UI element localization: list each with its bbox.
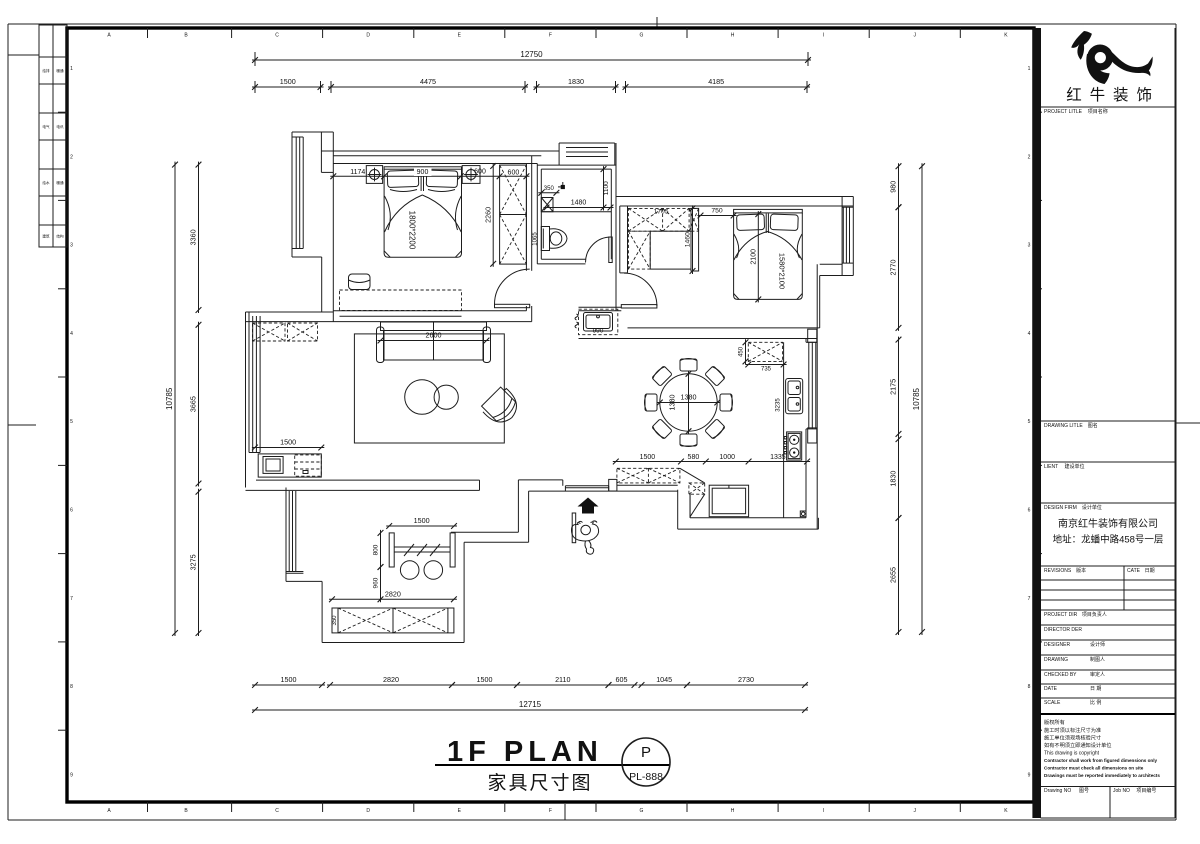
svg-text:Drawing NO: Drawing NO <box>1044 788 1071 794</box>
svg-text:F: F <box>549 33 552 39</box>
svg-text:2100: 2100 <box>751 249 758 265</box>
svg-text:1500: 1500 <box>280 77 296 86</box>
svg-text:红 牛 装 饰: 红 牛 装 饰 <box>1066 86 1154 104</box>
svg-text:PROJECT LITLE: PROJECT LITLE <box>1044 109 1083 115</box>
svg-text:H: H <box>731 33 735 39</box>
svg-text:750: 750 <box>711 208 723 215</box>
svg-text:建筑: 建筑 <box>42 234 50 239</box>
svg-text:F: F <box>549 808 552 814</box>
svg-text:This drawing is copyright: This drawing is copyright <box>1044 751 1100 757</box>
svg-text:暖通: 暖通 <box>56 68 64 73</box>
svg-text:450: 450 <box>739 346 745 357</box>
svg-text:版本: 版本 <box>1076 567 1086 574</box>
svg-text:D: D <box>366 808 370 814</box>
svg-text:SCALE: SCALE <box>1044 700 1061 706</box>
svg-text:2260: 2260 <box>483 207 492 223</box>
svg-text:电气: 电气 <box>42 124 50 129</box>
svg-text:6: 6 <box>1028 508 1031 514</box>
svg-text:Job NO: Job NO <box>1113 788 1130 794</box>
svg-text:6: 6 <box>70 508 73 514</box>
svg-text:9: 9 <box>1028 772 1031 778</box>
svg-text:2655: 2655 <box>889 567 898 583</box>
svg-text:1065: 1065 <box>533 232 539 246</box>
svg-text:D: D <box>366 33 370 39</box>
svg-text:日 期: 日 期 <box>1090 686 1101 692</box>
svg-text:4185: 4185 <box>708 77 724 86</box>
svg-text:600: 600 <box>508 170 520 177</box>
svg-text:1500: 1500 <box>280 438 296 447</box>
svg-text:Contractor shall work from fig: Contractor shall work from figured dimen… <box>1044 758 1158 763</box>
svg-text:3275: 3275 <box>189 554 198 570</box>
svg-text:项目负责人: 项目负责人 <box>1082 611 1107 618</box>
svg-text:图名: 图名 <box>1088 422 1098 429</box>
svg-text:605: 605 <box>616 675 628 684</box>
svg-text:1335: 1335 <box>770 454 786 461</box>
svg-text:设计单位: 设计单位 <box>1082 504 1102 511</box>
svg-text:9: 9 <box>70 772 73 778</box>
svg-text:DRAWING LITLE: DRAWING LITLE <box>1044 423 1083 429</box>
svg-text:DATE: DATE <box>1044 686 1058 692</box>
svg-text:3360: 3360 <box>189 229 198 245</box>
svg-text:3235: 3235 <box>776 398 782 412</box>
svg-text:DIRECTOR DER: DIRECTOR DER <box>1044 627 1082 633</box>
svg-text:建设单位: 建设单位 <box>1065 463 1085 470</box>
svg-text:比 例: 比 例 <box>1090 699 1101 706</box>
svg-text:12715: 12715 <box>519 700 542 709</box>
svg-text:2820: 2820 <box>385 590 401 599</box>
svg-text:350: 350 <box>544 186 555 192</box>
svg-text:C: C <box>275 808 279 814</box>
svg-text:地址：龙蟠中路458号一层: 地址：龙蟠中路458号一层 <box>1053 534 1164 546</box>
svg-text:580: 580 <box>688 454 700 461</box>
svg-text:给水: 给水 <box>42 180 50 185</box>
svg-text:C: C <box>275 33 279 39</box>
svg-text:980: 980 <box>889 181 898 193</box>
svg-text:G: G <box>640 33 644 39</box>
svg-text:8: 8 <box>70 684 73 690</box>
svg-text:1: 1 <box>70 66 73 72</box>
svg-text:3665: 3665 <box>189 396 198 412</box>
svg-text:10785: 10785 <box>165 387 174 410</box>
svg-text:施工单位须现场核验尺寸: 施工单位须现场核验尺寸 <box>1044 734 1101 742</box>
svg-text:电讯: 电讯 <box>56 124 64 129</box>
svg-text:1174: 1174 <box>350 169 365 176</box>
svg-text:4: 4 <box>70 331 73 337</box>
svg-text:1800*2200: 1800*2200 <box>408 211 417 250</box>
svg-text:I: I <box>823 808 824 814</box>
svg-text:施工时须以标注尺寸为准: 施工时须以标注尺寸为准 <box>1044 726 1101 734</box>
svg-text:I: I <box>823 33 824 39</box>
svg-text:1705: 1705 <box>653 209 668 216</box>
svg-text:600: 600 <box>474 169 486 176</box>
svg-text:1100: 1100 <box>603 181 610 195</box>
svg-text:暖通: 暖通 <box>56 180 64 185</box>
svg-text:LIENT: LIENT <box>1044 464 1058 470</box>
svg-text:1F PLAN: 1F PLAN <box>447 736 603 768</box>
svg-text:960: 960 <box>373 577 380 588</box>
svg-text:2: 2 <box>1028 154 1031 160</box>
svg-text:图号: 图号 <box>1079 788 1089 794</box>
svg-text:结构: 结构 <box>56 234 64 239</box>
svg-text:日期: 日期 <box>1145 568 1155 574</box>
svg-text:如有不明须立即通知设计单位: 如有不明须立即通知设计单位 <box>1044 741 1111 749</box>
svg-text:5: 5 <box>1028 419 1031 425</box>
svg-text:Contractor must check all dime: Contractor must check all dimensions on … <box>1044 766 1144 771</box>
svg-text:Drawings must be reported imme: Drawings must be reported immediately to… <box>1044 773 1160 778</box>
svg-text:4: 4 <box>1028 331 1031 337</box>
svg-text:1830: 1830 <box>889 471 898 487</box>
svg-text:8: 8 <box>1028 684 1031 690</box>
svg-text:990: 990 <box>593 328 604 335</box>
svg-text:7: 7 <box>1028 596 1031 602</box>
svg-text:PROJECT DIR: PROJECT DIR <box>1044 612 1078 618</box>
svg-text:DESIGNER: DESIGNER <box>1044 642 1071 648</box>
svg-text:2730: 2730 <box>738 675 754 684</box>
svg-text:1500: 1500 <box>477 675 493 684</box>
svg-text:DESIGN FIRM: DESIGN FIRM <box>1044 505 1077 511</box>
svg-text:5: 5 <box>70 419 73 425</box>
svg-text:2: 2 <box>70 154 73 160</box>
svg-text:2770: 2770 <box>889 260 898 276</box>
svg-text:给排: 给排 <box>42 68 50 73</box>
svg-text:CATE: CATE <box>1127 568 1141 574</box>
svg-text:1500: 1500 <box>640 454 656 461</box>
svg-text:P: P <box>641 744 651 761</box>
svg-text:1460: 1460 <box>685 232 692 247</box>
svg-text:南京红牛装饰有限公司: 南京红牛装饰有限公司 <box>1058 517 1158 530</box>
svg-text:家具尺寸图: 家具尺寸图 <box>487 772 592 794</box>
svg-text:1480: 1480 <box>571 200 587 207</box>
svg-text:1830: 1830 <box>568 77 584 86</box>
svg-text:H: H <box>731 808 735 814</box>
svg-text:1380: 1380 <box>668 395 677 411</box>
svg-text:10785: 10785 <box>912 387 921 410</box>
svg-text:3: 3 <box>1028 243 1031 249</box>
svg-text:项目编号: 项目编号 <box>1136 787 1156 794</box>
svg-text:1045: 1045 <box>656 675 672 684</box>
svg-text:REVISIONS: REVISIONS <box>1044 568 1072 574</box>
svg-text:12750: 12750 <box>520 50 543 59</box>
svg-text:1500: 1500 <box>281 675 297 684</box>
svg-text:G: G <box>640 808 644 814</box>
svg-text:2600: 2600 <box>426 331 442 340</box>
svg-text:1500: 1500 <box>414 516 430 525</box>
svg-text:1: 1 <box>1028 66 1031 72</box>
svg-text:版权所有: 版权所有 <box>1044 718 1065 726</box>
svg-text:800: 800 <box>373 544 380 555</box>
svg-text:900: 900 <box>417 169 429 176</box>
svg-text:2175: 2175 <box>889 379 898 395</box>
svg-text:2820: 2820 <box>383 675 399 684</box>
svg-text:735: 735 <box>761 367 772 373</box>
svg-text:4475: 4475 <box>420 77 436 86</box>
svg-text:2110: 2110 <box>555 675 570 684</box>
svg-text:7: 7 <box>70 596 73 602</box>
svg-text:3: 3 <box>70 243 73 249</box>
svg-text:PL-888: PL-888 <box>629 771 663 783</box>
svg-text:350: 350 <box>332 615 338 626</box>
svg-text:项目名称: 项目名称 <box>1088 108 1108 115</box>
svg-text:制图人: 制图人 <box>1090 656 1105 663</box>
svg-text:审定人: 审定人 <box>1090 671 1105 678</box>
svg-text:设计师: 设计师 <box>1090 641 1105 648</box>
svg-text:CHECKED BY: CHECKED BY <box>1044 672 1077 678</box>
svg-text:1580*2100: 1580*2100 <box>778 253 787 289</box>
svg-text:DRAWING: DRAWING <box>1044 657 1068 663</box>
svg-text:1000: 1000 <box>719 454 735 461</box>
